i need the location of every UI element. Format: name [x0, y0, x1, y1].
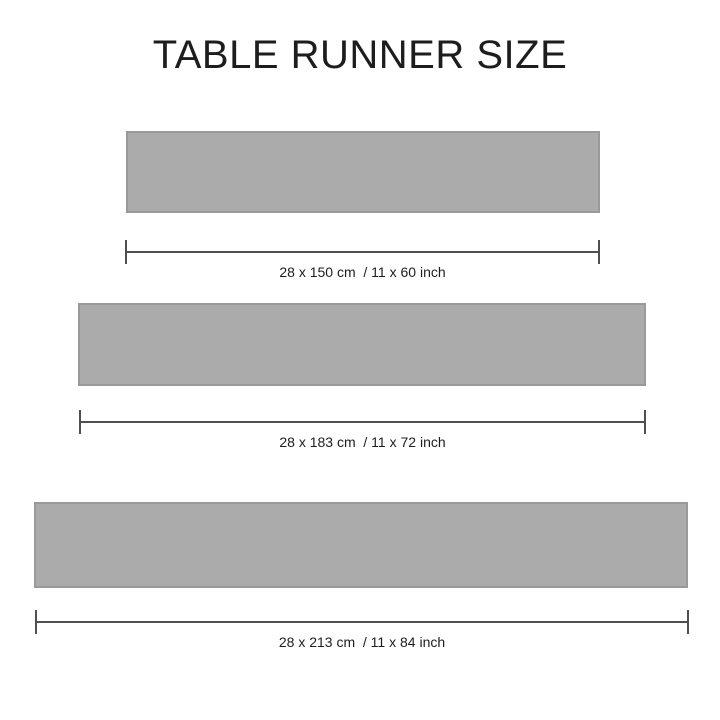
runner-rect-150cm — [126, 131, 600, 213]
dimension-left-tick — [125, 240, 127, 264]
dimension-line-213cm — [35, 621, 689, 623]
dimension-left-tick — [35, 610, 37, 634]
table-runner-size-chart: TABLE RUNNER SIZE 28 x 150 cm / 11 x 60 … — [0, 0, 720, 720]
dimension-label-150cm: 28 x 150 cm / 11 x 60 inch — [125, 264, 600, 280]
dimension-line-183cm — [79, 421, 646, 423]
dimension-right-tick — [598, 240, 600, 264]
runner-rect-213cm — [34, 502, 688, 588]
dimension-label-183cm: 28 x 183 cm / 11 x 72 inch — [79, 434, 646, 450]
runner-rect-183cm — [78, 303, 646, 386]
dimension-right-tick — [687, 610, 689, 634]
dimension-line-150cm — [125, 251, 600, 253]
dimension-left-tick — [79, 410, 81, 434]
dimension-right-tick — [644, 410, 646, 434]
page-title: TABLE RUNNER SIZE — [0, 33, 720, 78]
dimension-label-213cm: 28 x 213 cm / 11 x 84 inch — [35, 634, 689, 650]
